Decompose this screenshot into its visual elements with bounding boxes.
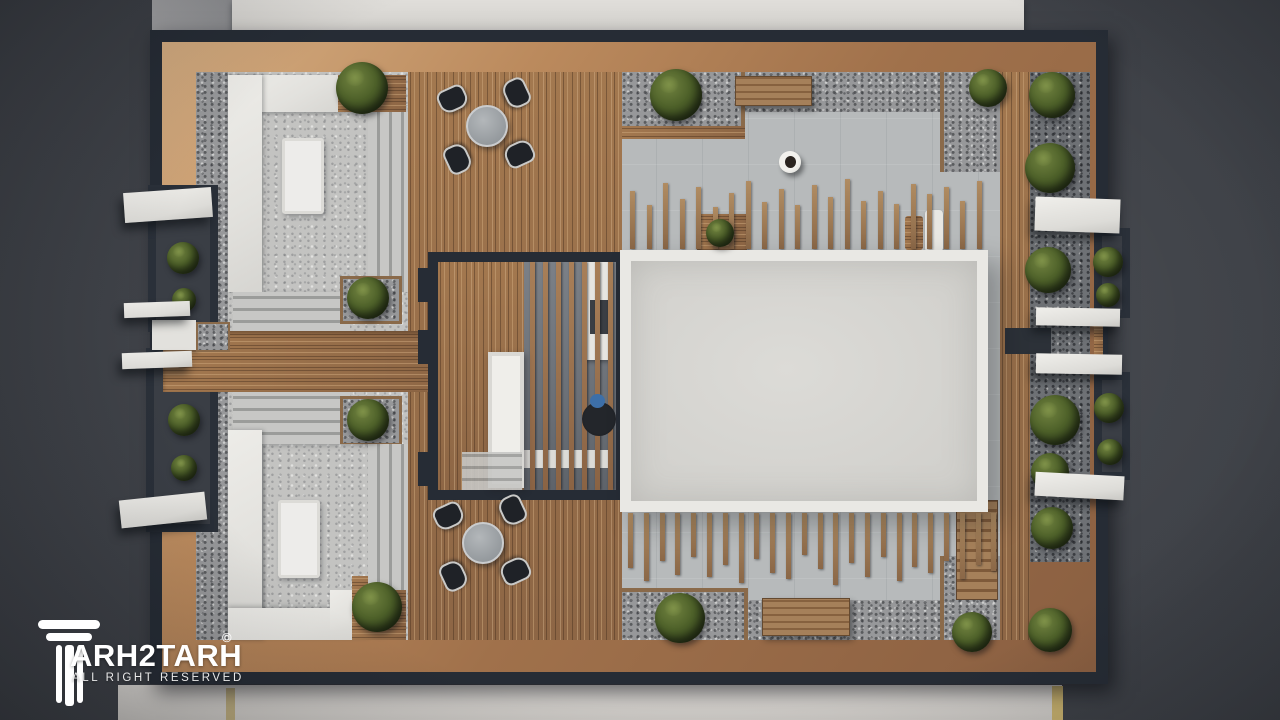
shrub	[347, 277, 389, 319]
round-table	[466, 105, 508, 147]
rooftop-render: ARH2TARH © ALL RIGHT RESERVED	[0, 0, 1280, 720]
timber-post-upper	[812, 185, 817, 249]
right-wood-walk	[1000, 72, 1030, 640]
timber-post-lower	[739, 513, 744, 583]
shrub	[655, 593, 705, 643]
chair	[430, 499, 466, 533]
shrub	[1025, 143, 1075, 193]
brand-name: ARH2TARH	[70, 638, 242, 674]
pergola-slat	[582, 262, 587, 490]
person-head-blue	[590, 394, 605, 408]
timber-post-upper	[680, 199, 685, 249]
timber-post-lower	[944, 513, 949, 561]
balcony-awning-left-1	[123, 187, 213, 223]
balcony-awning-right-4	[1034, 472, 1124, 501]
timber-post-upper	[927, 194, 932, 249]
timber-post-lower	[628, 513, 633, 568]
bar-counter-item	[590, 300, 610, 334]
timber-post-lower	[912, 513, 917, 567]
timber-post-lower	[960, 513, 965, 579]
timber-post-upper	[630, 191, 635, 249]
timber-post-lower	[865, 513, 870, 577]
pergola-slat	[556, 262, 561, 490]
timber-post-upper	[845, 179, 850, 249]
person-walking	[779, 151, 801, 173]
dining-set	[428, 488, 538, 598]
timber-post-lower	[928, 513, 933, 573]
shrub	[1028, 608, 1072, 652]
left-mid-bridge	[196, 322, 230, 352]
timber-post-lower	[991, 513, 996, 571]
timber-post-lower	[707, 513, 712, 577]
steps-top-pad-east	[368, 112, 408, 292]
curb-trim-right	[1052, 686, 1063, 720]
right-door-jamb	[1094, 322, 1103, 358]
pergola-slat	[608, 262, 613, 490]
bench-top	[735, 76, 812, 106]
pergola-slat	[543, 262, 548, 490]
timber-post-lower	[786, 513, 791, 579]
timber-post-upper	[960, 201, 965, 249]
balcony-awning-left-3	[122, 351, 193, 369]
lounge-cushion-top	[282, 138, 324, 214]
shrub	[168, 404, 200, 436]
chair	[495, 492, 529, 528]
timber-post-lower	[754, 513, 759, 559]
bench-bottom	[762, 598, 850, 636]
shrub	[167, 242, 199, 274]
timber-post-lower	[833, 513, 838, 585]
timber-post-upper	[663, 183, 668, 249]
timber-post-lower	[644, 513, 649, 581]
timber-post-upper	[878, 191, 883, 249]
shrub	[706, 219, 734, 247]
timber-post-lower	[660, 513, 665, 561]
pergola-slat	[569, 262, 574, 490]
shrub	[171, 455, 197, 481]
balcony-awning-right-2	[1036, 307, 1120, 326]
shrub	[1029, 72, 1075, 118]
pergola-slat	[595, 262, 600, 490]
adjacent-slab-top-left	[152, 0, 234, 30]
timber-post-lower	[849, 513, 854, 563]
shrub	[1093, 247, 1123, 277]
pergola-skylight-opening	[524, 262, 616, 490]
timber-post-upper	[911, 184, 916, 249]
balcony-awning-left-2	[124, 301, 190, 318]
lounge-cushion-bottom	[278, 500, 320, 578]
timber-post-upper	[894, 204, 899, 249]
lounge-bench-top-vertical	[228, 75, 262, 292]
chair	[440, 141, 474, 177]
pergola-slat	[530, 262, 535, 490]
shrub	[1097, 439, 1123, 465]
pergola-stairs	[462, 452, 522, 490]
timber-post-lower	[897, 513, 902, 581]
brand-tagline: ALL RIGHT RESERVED	[72, 672, 244, 684]
timber-post-upper	[795, 205, 800, 249]
shrub	[650, 69, 702, 121]
balcony-awning-right-1	[1034, 197, 1120, 234]
shrub	[1094, 393, 1124, 423]
timber-post-upper	[977, 181, 982, 249]
shrub	[952, 612, 992, 652]
timber-post-upper	[762, 202, 767, 249]
shrub	[1096, 283, 1120, 307]
timber-post-lower	[675, 513, 680, 575]
adjacent-sidewalk-top	[232, 0, 1024, 33]
watermark: ARH2TARH © ALL RIGHT RESERVED	[26, 608, 286, 708]
shrub	[1031, 507, 1073, 549]
shrub	[336, 62, 388, 114]
timber-post-lower	[770, 513, 775, 573]
steps-corridor-north	[233, 292, 350, 332]
pergola-frame-tab-2	[418, 330, 430, 364]
timber-post-lower	[818, 513, 823, 569]
timber-post-upper	[696, 187, 701, 249]
right-doorway	[1005, 328, 1051, 354]
shrub	[1025, 247, 1071, 293]
copyright-symbol: ©	[222, 630, 232, 645]
person-seated	[582, 402, 616, 436]
timber-post-upper	[647, 205, 652, 249]
chair	[501, 137, 537, 171]
timber-post-lower	[723, 513, 728, 565]
timber-post-upper	[779, 189, 784, 249]
pergola-frame-tab-1	[418, 268, 430, 302]
white-roof-slab	[620, 250, 988, 512]
round-table	[462, 522, 504, 564]
planter-lip-top-left	[622, 126, 745, 139]
balcony-awning-right-3	[1036, 353, 1122, 374]
shrub	[347, 399, 389, 441]
timber-post-upper	[828, 197, 833, 249]
chair	[434, 82, 470, 116]
dining-set	[432, 71, 542, 181]
timber-post-upper	[944, 187, 949, 249]
chair	[497, 554, 533, 588]
chair	[499, 75, 533, 111]
person-head	[785, 156, 796, 168]
chair	[436, 558, 470, 594]
shrub	[352, 582, 402, 632]
timber-post-upper	[861, 201, 866, 249]
pergola-frame-tab-3	[418, 452, 430, 486]
timber-post-lower	[976, 513, 981, 565]
timber-post-upper	[746, 181, 751, 249]
steps-bottom-pad-east	[368, 444, 408, 590]
shrub	[1030, 395, 1080, 445]
shrub	[969, 69, 1007, 107]
timber-post-lower	[691, 513, 696, 557]
timber-post-lower	[802, 513, 807, 555]
left-mid-landing	[152, 320, 196, 350]
timber-post-lower	[881, 513, 886, 557]
